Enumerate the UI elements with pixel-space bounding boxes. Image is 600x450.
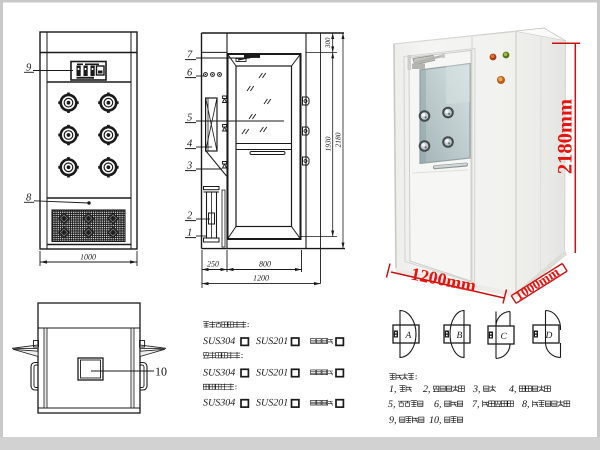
svg-text:B: B	[457, 331, 463, 341]
svg-text:SUS304: SUS304	[203, 398, 235, 409]
svg-text:8,: 8,	[522, 399, 530, 410]
svg-text:2180mm: 2180mm	[555, 99, 577, 174]
svg-text:800: 800	[259, 260, 271, 269]
svg-text:5,: 5,	[388, 399, 396, 410]
svg-text:SUS304: SUS304	[203, 336, 235, 347]
svg-text:10: 10	[155, 365, 167, 379]
svg-text:5: 5	[187, 113, 192, 124]
svg-text:A: A	[405, 331, 412, 341]
svg-text:C: C	[501, 332, 508, 342]
svg-text:2180: 2180	[334, 132, 343, 147]
svg-text:6: 6	[187, 68, 193, 79]
svg-text:7,: 7,	[472, 399, 480, 410]
svg-text:1000: 1000	[80, 253, 96, 262]
svg-text:1,: 1,	[389, 384, 397, 395]
svg-text:4: 4	[187, 139, 193, 150]
svg-text:3: 3	[186, 161, 192, 172]
svg-text:9: 9	[26, 63, 32, 74]
svg-text:SUS201: SUS201	[256, 367, 288, 378]
svg-text:1930: 1930	[324, 136, 333, 151]
svg-text:3,: 3,	[472, 384, 481, 395]
svg-text:SUS201: SUS201	[256, 398, 288, 409]
svg-text:6,: 6,	[434, 399, 442, 410]
svg-text:SUS304: SUS304	[203, 367, 235, 378]
svg-text:4,: 4,	[509, 384, 517, 395]
svg-text:9,: 9,	[389, 415, 397, 426]
svg-text:2,: 2,	[423, 384, 431, 395]
svg-text:1200: 1200	[253, 274, 269, 283]
svg-text:SUS201: SUS201	[256, 336, 288, 347]
svg-text:D: D	[545, 331, 553, 341]
svg-text:1: 1	[187, 228, 192, 239]
svg-text:2: 2	[187, 211, 193, 222]
svg-text:7: 7	[187, 50, 193, 61]
svg-text:10,: 10,	[429, 415, 442, 426]
svg-text:300: 300	[324, 37, 332, 49]
svg-text:250: 250	[207, 260, 219, 269]
